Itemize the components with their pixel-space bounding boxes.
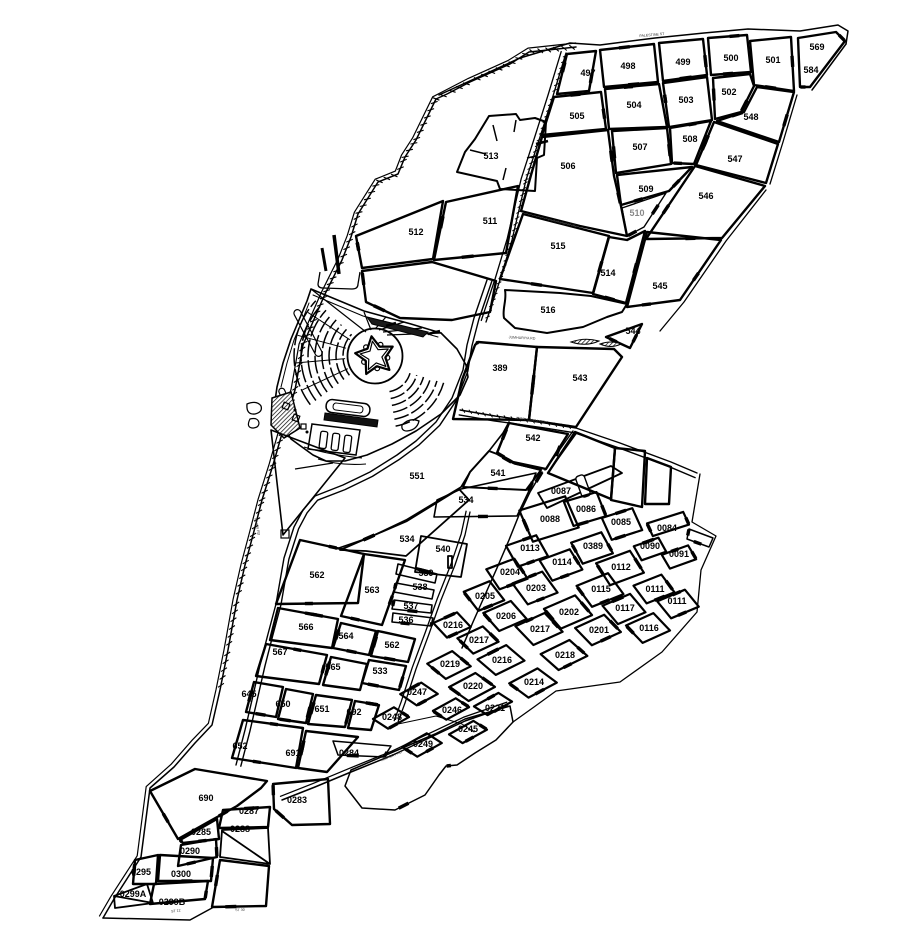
svg-text:513: 513 <box>483 151 498 161</box>
svg-text:0216: 0216 <box>443 620 463 630</box>
svg-text:533: 533 <box>372 666 387 676</box>
svg-text:0205: 0205 <box>475 591 495 601</box>
svg-text:538: 538 <box>412 582 427 592</box>
svg-text:504: 504 <box>626 100 641 110</box>
svg-text:0201: 0201 <box>589 625 609 635</box>
svg-text:563: 563 <box>364 585 379 595</box>
svg-text:0389: 0389 <box>583 541 603 551</box>
svg-text:506: 506 <box>560 161 575 171</box>
svg-text:536: 536 <box>398 615 413 625</box>
svg-text:0086: 0086 <box>576 504 596 514</box>
svg-text:0248: 0248 <box>382 712 402 722</box>
svg-text:650: 650 <box>275 699 290 709</box>
svg-text:540: 540 <box>435 544 450 554</box>
svg-text:0285: 0285 <box>191 827 211 837</box>
svg-text:501: 501 <box>765 55 780 65</box>
svg-text:0112: 0112 <box>611 562 631 572</box>
svg-text:0217: 0217 <box>469 635 489 645</box>
svg-text:0299B: 0299B <box>159 897 186 907</box>
svg-text:503: 503 <box>678 95 693 105</box>
svg-text:0114: 0114 <box>552 557 572 567</box>
svg-text:565: 565 <box>325 662 340 672</box>
svg-text:0206: 0206 <box>496 611 516 621</box>
svg-text:512: 512 <box>408 227 423 237</box>
svg-text:0216: 0216 <box>492 655 512 665</box>
svg-text:546: 546 <box>698 191 713 201</box>
svg-text:505: 505 <box>569 111 584 121</box>
svg-text:516: 516 <box>540 305 555 315</box>
svg-text:0284: 0284 <box>339 748 359 758</box>
svg-text:534: 534 <box>458 495 473 505</box>
svg-text:515: 515 <box>550 241 565 251</box>
svg-text:0117: 0117 <box>615 603 635 613</box>
svg-text:0283: 0283 <box>287 795 307 805</box>
svg-text:508: 508 <box>682 134 697 144</box>
svg-text:534: 534 <box>399 534 414 544</box>
svg-text:551: 551 <box>409 471 424 481</box>
svg-text:0214: 0214 <box>524 677 544 687</box>
svg-text:0088: 0088 <box>540 514 560 524</box>
svg-text:0087: 0087 <box>551 486 571 496</box>
svg-text:0111: 0111 <box>645 584 664 594</box>
svg-text:548: 548 <box>743 112 758 122</box>
svg-text:542: 542 <box>525 433 540 443</box>
svg-text:692: 692 <box>346 707 361 717</box>
svg-text:0245: 0245 <box>458 724 478 734</box>
svg-text:564: 564 <box>338 631 353 641</box>
svg-text:0116: 0116 <box>639 623 659 633</box>
svg-text:510: 510 <box>629 208 644 218</box>
svg-text:ST 30: ST 30 <box>235 908 245 912</box>
svg-text:584: 584 <box>803 65 818 75</box>
svg-text:539: 539 <box>418 568 433 578</box>
svg-text:502: 502 <box>721 87 736 97</box>
svg-text:0202: 0202 <box>559 607 579 617</box>
svg-text:514: 514 <box>600 268 615 278</box>
svg-text:509: 509 <box>638 184 653 194</box>
svg-text:543: 543 <box>572 373 587 383</box>
svg-text:0290: 0290 <box>180 846 200 856</box>
svg-text:0246: 0246 <box>442 705 462 715</box>
svg-text:566: 566 <box>298 622 313 632</box>
svg-text:545: 545 <box>652 281 667 291</box>
svg-text:562: 562 <box>309 570 324 580</box>
svg-text:0300: 0300 <box>171 869 191 879</box>
svg-text:0091: 0091 <box>669 549 689 559</box>
svg-text:537: 537 <box>403 601 418 611</box>
svg-text:0249: 0249 <box>413 739 433 749</box>
svg-text:0115: 0115 <box>591 584 611 594</box>
svg-text:691: 691 <box>285 748 300 758</box>
svg-text:0247: 0247 <box>407 687 427 697</box>
svg-text:0111: 0111 <box>667 596 686 606</box>
svg-text:0288: 0288 <box>230 824 250 834</box>
svg-text:511: 511 <box>483 216 498 226</box>
svg-text:544: 544 <box>625 326 640 336</box>
svg-text:0219: 0219 <box>440 659 460 669</box>
svg-text:690: 690 <box>198 793 213 803</box>
svg-text:0220: 0220 <box>463 681 483 691</box>
svg-text:651: 651 <box>314 704 329 714</box>
svg-text:0204: 0204 <box>500 567 520 577</box>
svg-text:0085: 0085 <box>611 517 631 527</box>
svg-text:497: 497 <box>580 68 595 78</box>
svg-text:0084: 0084 <box>657 523 677 533</box>
svg-text:652: 652 <box>232 741 247 751</box>
svg-text:0299A: 0299A <box>120 889 147 899</box>
svg-text:645: 645 <box>241 689 256 699</box>
svg-text:0221: 0221 <box>485 703 505 713</box>
svg-text:389: 389 <box>492 363 507 373</box>
svg-text:541: 541 <box>490 468 505 478</box>
svg-text:562: 562 <box>384 640 399 650</box>
svg-text:507: 507 <box>632 142 647 152</box>
svg-text:547: 547 <box>727 154 742 164</box>
svg-text:567: 567 <box>272 647 287 657</box>
svg-text:499: 499 <box>675 57 690 67</box>
svg-text:0218: 0218 <box>555 650 575 660</box>
svg-text:0090: 0090 <box>640 541 660 551</box>
svg-text:0217: 0217 <box>530 624 550 634</box>
svg-text:500: 500 <box>723 53 738 63</box>
svg-text:498: 498 <box>620 61 635 71</box>
svg-text:0203: 0203 <box>526 583 546 593</box>
svg-text:0287: 0287 <box>239 806 259 816</box>
svg-text:569: 569 <box>809 42 824 52</box>
svg-text:0295: 0295 <box>131 867 151 877</box>
svg-text:0113: 0113 <box>520 543 540 553</box>
